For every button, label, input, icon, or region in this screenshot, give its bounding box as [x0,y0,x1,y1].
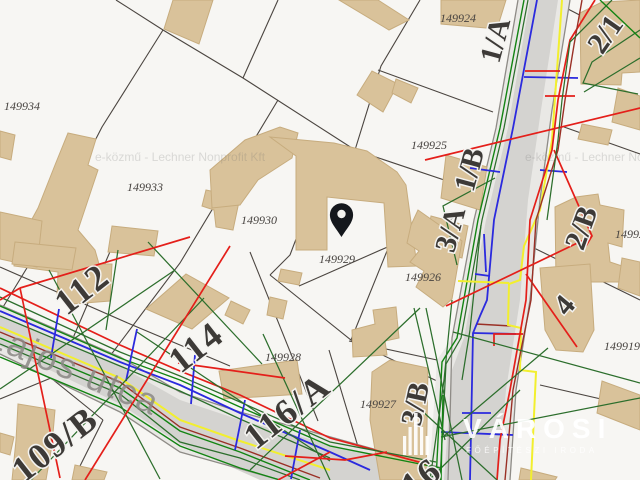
svg-text:e-közmű - Lechner Nonprofit Kf: e-közmű - Lechner Nonprofit Kft [525,150,640,164]
svg-text:149933: 149933 [127,180,163,194]
svg-text:FŐÉPÍTÉSZI IRODA: FŐÉPÍTÉSZI IRODA [466,446,598,455]
svg-text:149919: 149919 [604,339,640,353]
svg-text:VÁROSI: VÁROSI [463,413,612,444]
svg-text:149924: 149924 [440,11,476,25]
svg-text:e-közmű - Lechner Nonprofit Kf: e-közmű - Lechner Nonprofit Kft [95,150,266,164]
svg-text:149928: 149928 [265,350,301,364]
svg-text:149927: 149927 [360,397,397,411]
svg-text:149920: 149920 [615,227,640,241]
svg-text:149925: 149925 [411,138,447,152]
svg-text:149926: 149926 [405,270,441,284]
svg-text:149934: 149934 [4,99,40,113]
svg-text:149930: 149930 [241,213,277,227]
svg-text:149929: 149929 [319,252,355,266]
